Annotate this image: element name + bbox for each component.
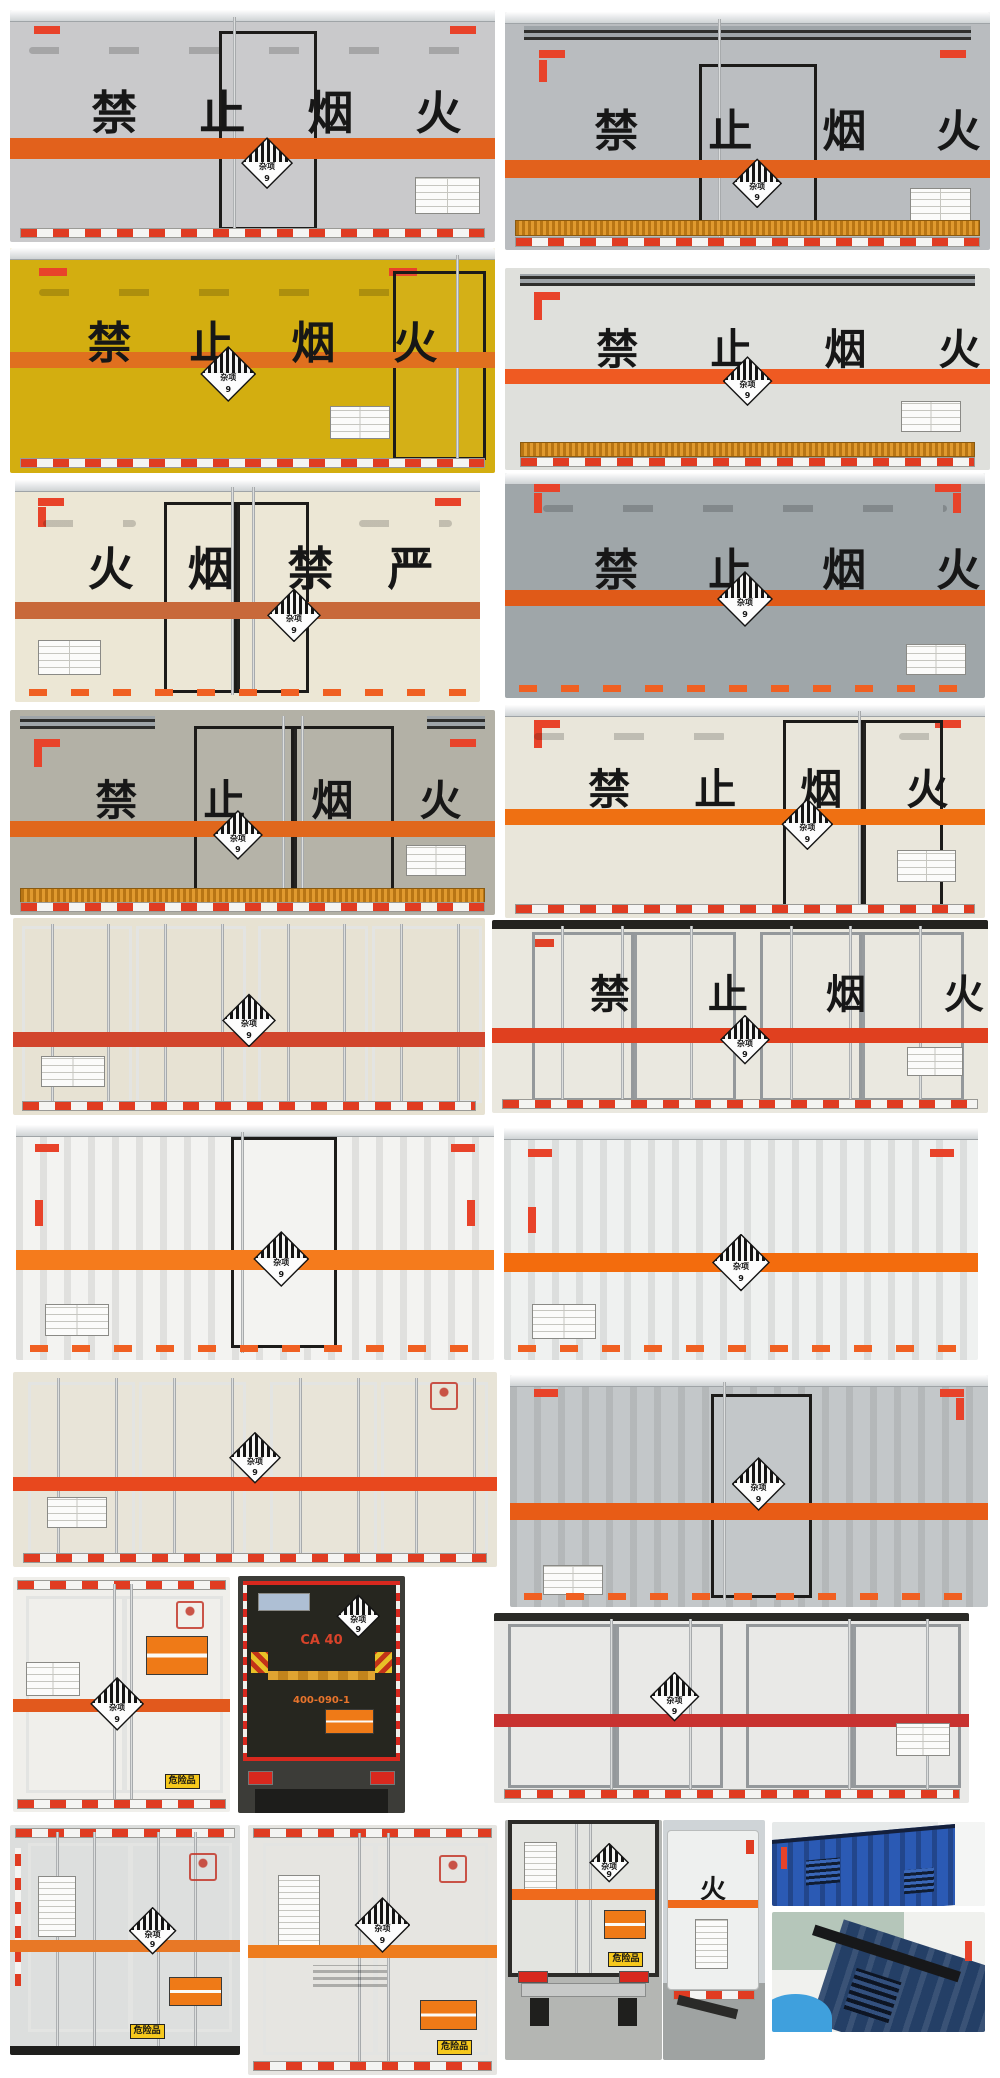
door-lock-rod [415,1378,418,1561]
box-slogan: 禁止烟火 [512,962,968,1020]
door-lock-rod [723,1382,726,1600]
side-reflective-strip [15,1848,21,1986]
red-reflector [930,1149,954,1157]
reflective-dashes [524,1593,973,1600]
truck-photo-18: 杂项 9 危险品 [10,1825,240,2055]
info-plate [543,1565,602,1595]
door-vents [313,1965,388,1987]
placard-label: 杂项 [213,835,263,843]
red-sticker [965,1941,972,1961]
cargo-door [258,926,368,1103]
truck-photo-21: 火 [663,1820,765,2060]
danger-goods-sign: 危险品 [608,1952,643,1967]
truck-photo-9: 杂项 9 [13,918,485,1115]
red-reflector [435,498,461,506]
truck-photo-15: 杂项 9 危险品 [13,1577,230,1812]
reflective-strip [17,1580,225,1590]
cargo-door [508,1624,619,1787]
red-reflector [450,739,476,747]
placard-label: 杂项 [253,1259,309,1267]
truck-photo-7: 禁止烟火 杂项 9 [10,710,495,915]
placard-label: 杂项 [781,824,833,832]
truck-photo-2: 禁止烟火 杂项 9 [505,12,990,250]
roof-bar [505,473,985,485]
truck-photo-14: 杂项 9 [510,1375,988,1607]
top-louvers [427,716,485,729]
reflective-strip [22,1101,475,1111]
info-plate [47,1497,107,1528]
cargo-door [270,1382,378,1556]
placard-label: 杂项 [354,1925,410,1933]
red-reflector [528,1207,536,1233]
door-lock-rod [473,1378,476,1561]
container-photo-2 [772,1912,985,2032]
cargo-door-right [124,1596,223,1793]
info-plate [415,177,480,214]
orange-panel-placard [325,1709,374,1735]
placard-label: 杂项 [720,1040,770,1048]
red-reflector [34,26,60,34]
danger-goods-sign: 危险品 [437,2040,472,2055]
container-vent [806,1857,840,1885]
info-plate [910,188,970,221]
red-reflector [467,1200,475,1226]
red-reflector [35,1144,59,1152]
placard-label: 杂项 [200,374,256,382]
placard-class-number: 9 [723,392,773,400]
top-rim [492,920,988,929]
chevron-marking [251,1652,268,1673]
top-louvers [20,716,156,729]
roof-bar [10,10,495,22]
hazard-placard-class9: 杂项 9 [589,1843,629,1883]
truck-photo-16: 杂项 9 CA 40 400-090-1 [238,1576,405,1813]
red-reflector [953,493,961,513]
door-lock-rod [115,1378,118,1561]
truck-photo-6: 禁止烟火 杂项 9 [505,473,985,698]
taillight-right [619,1971,649,1983]
safety-notice-plate [695,1919,728,1969]
info-plate [907,1047,964,1076]
reflective-dashes [518,1345,964,1352]
reflective-dashes [519,685,970,692]
amber-grille-strip [520,442,976,457]
roof-bar [505,705,985,717]
info-plate [906,644,966,675]
mudflap-left [530,1998,549,2027]
reflective-dashes [29,689,466,696]
red-reflector [956,1398,964,1420]
orange-panel-placard [169,1977,222,2007]
tail-lift [255,1789,389,1813]
info-list-plate [278,1875,320,1947]
door-lock-rod [107,924,110,1109]
reflective-strip [23,1553,488,1563]
bumper [521,1983,647,1997]
door-lock-rod [287,924,290,1109]
door-lock-rod [457,924,460,1109]
reflective-dashes [30,1345,479,1352]
truck-photo-5: 火烟禁严 杂项 9 [15,480,480,702]
red-reflector [534,493,542,513]
top-rim [494,1613,969,1621]
info-plate [330,406,390,440]
roof-bar [505,12,990,24]
info-plate [896,1723,950,1755]
brand-seal [439,1855,467,1883]
reflective-strip [20,458,486,468]
placard-label: 杂项 [589,1863,629,1871]
box-slogan: 禁止烟火 [524,95,970,159]
red-reflector [534,484,560,492]
door-lock-rod [241,1132,244,1353]
door-lock-rod [400,924,403,1109]
placard-label: 杂项 [732,1484,786,1492]
box-slogan: 禁止烟火 [29,307,475,371]
red-reflector [35,1200,43,1226]
reflective-strip [515,237,981,247]
info-plate [901,401,961,431]
info-plate [406,845,466,876]
safety-notice-plate [524,1842,557,1895]
truck-photo-4: 禁止烟火 杂项 9 [505,268,990,470]
red-reflector [935,484,961,492]
cargo-door [372,926,482,1103]
placard-label: 杂项 [717,599,773,607]
truck-photo-12: 杂项 9 [504,1128,978,1360]
door-lock-rod [164,924,167,1109]
panel-vents [543,505,946,512]
truck-photo-8: 禁止烟火 杂项 9 [505,705,985,918]
placard-label: 杂项 [90,1704,144,1712]
brand-text: CA 40 [245,1633,399,1648]
panel-vents [39,289,408,296]
info-plate [532,1304,596,1338]
door-lock-rod [231,1378,234,1561]
info-plate [41,1056,104,1088]
panel-vents [534,733,726,740]
red-reflector [34,739,60,747]
placard-label: 杂项 [267,615,321,623]
red-reflector [940,50,966,58]
mudflap-right [618,1998,637,2027]
warning-stripe [15,602,480,619]
cargo-door [28,1382,136,1556]
roof-bar [15,480,480,492]
info-plate [897,850,957,882]
cargo-box: 杂项 9 危险品 [508,1820,659,1977]
truck-photo-13: 杂项 9 [13,1372,497,1567]
door-lock-rod [689,1619,692,1798]
placard-label: 杂项 [650,1697,700,1705]
truck-photo-19: 杂项 9 危险品 [248,1825,497,2075]
reflective-strip [520,457,976,467]
placard-label: 杂项 [712,1263,770,1271]
danger-goods-sign: 危险品 [130,2024,165,2039]
info-plate [38,640,100,675]
reflective-strip [253,1828,492,1838]
orange-panel-placard [146,1636,209,1676]
placard-class-number: 9 [717,611,773,619]
container-vent [904,1868,934,1894]
red-reflector [450,26,476,34]
placard-label: 杂项 [732,183,782,191]
photo-collage: 禁止烟火 杂项 9 禁止烟火 杂项 9 [0,0,1000,2078]
red-reflector [528,1149,552,1157]
cargo-box-side: 火 [667,1830,759,1990]
truck-photo-11: 杂项 9 [16,1125,494,1360]
box-slogan: 禁止烟火 [524,756,966,817]
info-labels [258,1593,310,1612]
red-reflector [534,1389,558,1397]
red-reflector [746,1840,754,1854]
panel-vents [43,520,136,527]
door-lock-rod [173,1378,176,1561]
red-reflector [539,60,547,82]
reflective-strip [20,902,486,912]
roof-bar [504,1128,978,1140]
placard-label: 杂项 [241,163,293,171]
red-reflector [940,1389,964,1397]
cargo-door-left [28,1843,131,2032]
reflective-strip [502,1099,978,1109]
taillight-left [248,1771,273,1785]
info-plate [26,1662,80,1697]
box-slogan: 禁止烟火 [29,767,475,828]
top-louvers [524,26,970,40]
roof-bar [16,1125,494,1137]
truck-photo-3: 禁止烟火 杂项 9 [10,248,495,473]
roof-bar [510,1375,988,1387]
red-sticker [781,1847,787,1869]
reflective-strip [17,1799,225,1809]
taillight-left [518,1971,548,1983]
red-reflector [34,747,42,767]
truck-photo-1: 禁止烟火 杂项 9 [10,10,495,242]
roof-bar [10,248,495,260]
box-slogan: 火烟禁严 [34,533,462,599]
placard-class-number: 9 [200,386,256,394]
orange-panel-placard [420,2000,477,2030]
amber-grille-strip [515,220,981,236]
warning-stripe [510,1503,988,1520]
door-lock-rod [57,1378,60,1561]
placard-class-number: 9 [589,1871,629,1879]
door-lock-rod [848,1619,851,1798]
red-reflector [534,720,560,728]
red-reflector [38,498,64,506]
red-reflector [539,50,565,58]
phone-number: 400-090-1 [245,1695,399,1706]
placard-label: 杂项 [229,1458,281,1466]
brand-seal [430,1382,458,1410]
placard-label: 杂项 [129,1931,177,1939]
reflective-strip [15,1828,236,1838]
reflective-strip [515,904,976,914]
red-reflector [39,268,67,276]
door-lock-rod [221,924,224,1109]
info-plate [45,1304,109,1337]
amber-light-bar [268,1671,375,1680]
orange-panel-placard [604,1910,646,1939]
placard-label: 杂项 [222,1020,276,1028]
red-reflector [534,292,560,300]
brand-seal [176,1601,204,1629]
top-louvers [520,274,976,286]
bumper [10,2046,240,2055]
blue-container [772,1824,955,1906]
danger-goods-sign: 危险品 [165,1774,200,1789]
chevron-marking [375,1652,392,1673]
truck-photo-10: 禁止烟火 杂项 9 [492,920,988,1113]
cargo-door [850,1624,961,1787]
warning-stripe [512,1889,655,1900]
truck-photo-17: 杂项 9 [494,1613,969,1803]
red-reflector [451,1144,475,1152]
door-lock-rod [343,924,346,1109]
info-list-plate [38,1876,77,1938]
container-photo-1 [772,1822,985,1906]
reflective-strip [20,228,486,238]
taillight-right [370,1771,395,1785]
warning-stripe [668,1900,758,1908]
placard-class-number: 9 [712,1275,770,1283]
box-slogan: 禁止烟火 [29,77,475,143]
reflective-strip [253,2061,492,2071]
cargo-door [746,1624,857,1787]
door-lock-rod [926,1619,929,1798]
warning-stripe [10,1940,240,1952]
warning-stripe [248,1945,497,1958]
truck-photo-20: 杂项 9 危险品 [505,1820,662,2060]
panel-vents [359,520,452,527]
amber-grille-strip [20,888,486,903]
placard-label: 杂项 [723,381,773,389]
door-lock-rod [299,1378,302,1561]
brand-seal [189,1853,217,1881]
reflective-strip [504,1789,960,1799]
door-lock-rod [357,1378,360,1561]
hazard-placard-class9: 杂项 9 [712,1234,770,1292]
door-lock-rod [610,1619,613,1798]
